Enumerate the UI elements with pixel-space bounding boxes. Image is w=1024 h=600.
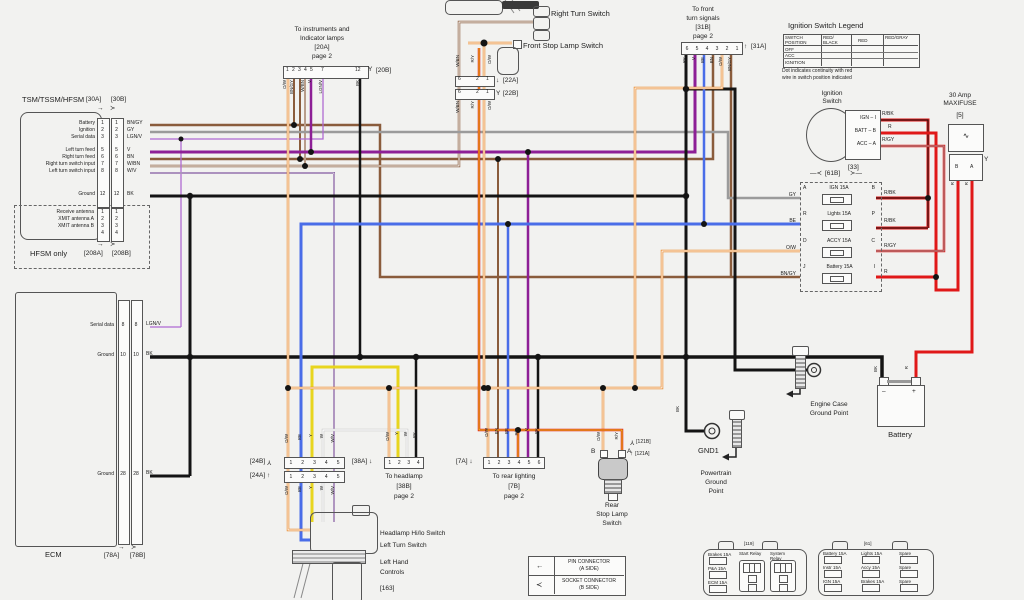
conn22-pin: 1 (486, 77, 489, 83)
relay-icon (770, 560, 796, 592)
conn31-pin: 5 (696, 46, 699, 52)
rear-stop-pin-a (618, 450, 626, 458)
conn24-pin: 3 (313, 460, 316, 466)
tsm-pin: 8 (111, 169, 122, 175)
ignition-switch-title: Switch (805, 98, 859, 105)
legend-col-line (821, 34, 822, 66)
front-stop-switch-body (497, 47, 519, 75)
conn22b-strip (455, 89, 495, 100)
conn20-pin: 3 (298, 68, 301, 74)
conn31-title: To front (668, 6, 738, 13)
conn7-pin: 5 (528, 460, 531, 466)
conn7-title: [7B] (474, 483, 554, 490)
wire-label: O/W (285, 434, 290, 443)
key-divider (528, 575, 624, 576)
rear-stop-label: Switch (589, 520, 635, 527)
fork-icon: Y (984, 156, 988, 163)
wire-label: BK (683, 57, 688, 63)
fuse-right-pin: P (872, 212, 875, 218)
switch-housing-outline (445, 0, 503, 15)
fuseblock-header-pre: —≺ (810, 170, 822, 177)
controls-housing (310, 512, 378, 554)
tsm-conn-30b: [30B] (111, 96, 126, 103)
conn7-pin: 1 (488, 460, 491, 466)
fuse-right-pin: C (871, 239, 875, 245)
wire-label: R/BK (884, 191, 896, 197)
conn38-title: page 2 (369, 493, 439, 500)
wire-label: BE (298, 486, 303, 492)
pin-arrow-icon: → (97, 105, 104, 112)
conn24b-strip: 1 2 3 4 5 (284, 457, 345, 469)
fork-icon: Y (630, 438, 634, 445)
conn7-pin: 6 (538, 460, 541, 466)
ground-stud-icon (795, 355, 806, 389)
legend-note: Dot indicates continuity with red (782, 69, 852, 75)
wire-label: GY (127, 128, 134, 134)
legend-row-label: ACC (785, 53, 795, 58)
tsm-row-label: Serial data (8, 135, 95, 141)
conn24-pin: 5 (337, 474, 340, 480)
tsm-pin: 12 (97, 192, 108, 198)
hfsm-pin: 4 (97, 231, 108, 237)
legend-row-line (783, 52, 918, 53)
conn24a-label: [24A] (250, 472, 265, 479)
fork-icon: Y (496, 90, 500, 97)
fuse-icon (862, 584, 880, 592)
conn31a-label: [31A] (751, 43, 766, 50)
right-turn-switch-base (533, 30, 550, 41)
fuse-amp: 15A (842, 211, 851, 217)
conn31-title: page 2 (668, 33, 738, 40)
ecm-pin: 10 (131, 353, 141, 359)
ignition-pin: BATT – B (846, 129, 876, 135)
tsm-pin: 1 (111, 121, 122, 127)
wires-brown (150, 53, 800, 458)
ecm-row-label: Ground (40, 353, 114, 359)
up-arrow-icon: ↑ (267, 472, 270, 479)
rear-stop-switch-thread (604, 479, 622, 494)
socket-connector-icon: ≺ (536, 580, 542, 589)
box119-relay-label: Start Relay (739, 551, 763, 556)
pin-arrow-icon: → (118, 544, 125, 551)
fuse-icon (900, 584, 918, 592)
tsm-pin: 5 (97, 148, 108, 154)
wire-label: BE (298, 434, 303, 440)
wire-label: BK (676, 406, 681, 412)
wire-label: Y (309, 434, 314, 437)
wire-label: R (884, 270, 888, 276)
rear-stop-switch-body (598, 458, 628, 480)
legend-col-line (851, 34, 852, 66)
hfsm-conn-208a: [208A] (84, 250, 103, 257)
conn121b-label: [121B] (636, 439, 650, 445)
fuse-icon (822, 273, 852, 284)
wire-label: BK (874, 366, 879, 372)
conn7-title: page 2 (474, 493, 554, 500)
fuse-icon (822, 247, 852, 258)
ignition-switch-title: Ignition (805, 90, 859, 97)
battery-neg-sign: – (882, 388, 886, 395)
conn20-title: page 2 (272, 53, 372, 60)
wire-label: R/GY (882, 138, 894, 144)
legend-note: wire in switch position indicated (782, 76, 852, 82)
ecm-box (15, 292, 117, 547)
key-pin-label: PIN CONNECTOR (556, 560, 622, 566)
wire-label: O/W (772, 246, 796, 252)
conn20-pin: 5 (310, 68, 313, 74)
wire-label: O/W (283, 80, 288, 89)
ecm-row-label: Ground (40, 472, 114, 478)
fuse-icon (824, 570, 842, 578)
fuse-name: Lights (827, 211, 840, 217)
box61-label: [61] (864, 541, 872, 546)
wire-label: Y (395, 432, 400, 435)
tsm-row-label: Ignition (8, 128, 95, 134)
ecm-conn-78b: [78B] (130, 552, 145, 559)
conn7-pin: 4 (518, 460, 521, 466)
wire-label: LGN/V (127, 135, 142, 141)
fuse-amp: 15A (842, 238, 851, 244)
fuse-name: Battery (826, 264, 842, 270)
wire-label: BE (772, 219, 796, 225)
wire-label: BK (146, 471, 153, 477)
ignition-pin: ACC – A (846, 142, 876, 148)
wire-label: BK (535, 428, 540, 434)
wires-ry (479, 48, 622, 458)
maxifuse-title: MAXIFUSE (930, 100, 990, 107)
wire-label: O/W (485, 428, 490, 437)
conn121a-label: [121A] (635, 451, 649, 457)
right-turn-switch-body (533, 17, 550, 30)
wire-label: R (965, 182, 970, 185)
maxifuse-body: ∿ (948, 124, 984, 152)
conn38-pin: 3 (407, 460, 410, 466)
powertrain-ground-label: Powertrain (692, 470, 740, 477)
wires-violet (150, 53, 695, 458)
powertrain-ground-label: Ground (692, 479, 740, 486)
fuse-amp: 15A (844, 264, 853, 270)
fuse-left-pin: J (803, 265, 806, 271)
fuse-right-pin: I (874, 265, 875, 271)
fork-icon: Y (368, 66, 372, 73)
tsm-pin: 2 (111, 128, 122, 134)
wire-label: O/W (488, 101, 493, 110)
conn20-pin: 12 (355, 68, 361, 74)
pin-arrow-icon: → (97, 241, 104, 248)
relay-icon (739, 560, 765, 592)
tsm-pin: 8 (97, 169, 108, 175)
ecm-pin: 28 (118, 472, 128, 478)
tsm-row-label: Right turn feed (8, 155, 95, 161)
left-turn-switch-label: Left Turn Switch (380, 542, 427, 549)
battery-pos-sign: + (912, 388, 916, 395)
conn38-pin: 2 (398, 460, 401, 466)
conn24b-label: [24B] (250, 458, 265, 465)
conn38-title: [38B] (369, 483, 439, 490)
wire-label: W (404, 432, 409, 436)
rear-stop-pin: B (591, 448, 595, 455)
hfsm-row-label: Receive antenna (28, 210, 94, 216)
conn38-strip: 1 2 3 4 (384, 457, 424, 469)
wire-label: O/W (488, 55, 493, 64)
fuse-icon (822, 220, 852, 231)
fuse-icon (824, 584, 842, 592)
wire-label: W/BN (456, 101, 461, 113)
wire-label: GY (772, 193, 796, 199)
tsm-title: TSM/TSSM/HFSM (22, 95, 84, 104)
fuse-icon (709, 557, 727, 565)
legend-col-header: SWITCH POSITION (785, 35, 819, 45)
socket-arrow-icon: ≻ (110, 105, 115, 112)
legend-col-line (883, 34, 884, 66)
tsm-pin: 1 (97, 121, 108, 127)
fuseblock-header-post: ≻— (850, 170, 862, 177)
wire-label: W/BN (127, 162, 140, 168)
ecm-pin: 28 (131, 472, 141, 478)
rear-stop-label: Rear (589, 502, 635, 509)
wire-label: BK (413, 432, 418, 438)
conn24-pin: 2 (301, 474, 304, 480)
wire-label: BK (146, 352, 153, 358)
headlamp-switch-label: Headlamp Hi/lo Switch (380, 530, 445, 537)
conn38-pin: 1 (388, 460, 391, 466)
down-arrow-icon: ↓ (469, 458, 472, 465)
rear-stop-pin-b (600, 450, 608, 458)
controls-conn-label: [163] (380, 585, 394, 592)
conn22a-strip (455, 76, 495, 87)
fuse-icon (709, 571, 727, 579)
fuse-row-text: A IGN 15A B (803, 186, 875, 192)
fuse-row-text: D ACCY 15A C (803, 239, 875, 245)
wiring-diagram-page: TSM/TSSM/HFSM [30A] [30B] → ≻ Battery Ig… (0, 0, 1024, 600)
ecm-row-label: Serial data (40, 323, 114, 329)
conn7-title: To rear lighting (474, 473, 554, 480)
wire-label: V (127, 148, 130, 154)
maxifuse-pin: B (955, 165, 958, 171)
fuse-name: IGN (829, 185, 838, 191)
fuse-name: ACCY (827, 238, 841, 244)
gnd1-label: GND1 (698, 446, 719, 455)
conn7-strip: 1 2 3 4 5 6 (483, 457, 545, 469)
tsm-pin: 7 (111, 162, 122, 168)
fuse-icon (709, 585, 727, 593)
conn24-pin: 1 (290, 474, 293, 480)
conn20-pin: 4 (304, 68, 307, 74)
conn20-pin: 7 (321, 68, 324, 74)
conn20-pin: 1 (286, 68, 289, 74)
fuse-right-pin: B (872, 186, 875, 192)
tsm-pin: 3 (97, 135, 108, 141)
wire-label: BN/GY (290, 80, 295, 94)
rear-stop-switch-tip (608, 493, 618, 501)
down-arrow-icon: ↓ (369, 458, 372, 465)
conn7-label: [7A] (456, 458, 468, 465)
fuse-left-pin: D (803, 239, 807, 245)
conn24-pin: 4 (325, 474, 328, 480)
ecm-pin: 10 (118, 353, 128, 359)
legend-col-header: RED (858, 38, 882, 43)
conn38-pin: 4 (417, 460, 420, 466)
down-arrow-icon: ↓ (496, 77, 499, 84)
wire-label: V (308, 80, 313, 83)
wire-bn-bus (150, 53, 713, 159)
tsm-row-label: Left turn switch input (8, 169, 95, 175)
conn20-label-b: [20B] (376, 67, 391, 74)
tsm-row-label: Right turn switch input (8, 162, 95, 168)
wire-label: R/BK (882, 112, 894, 118)
ignition-pin: IGN – I (846, 116, 876, 122)
conn31-pin: 6 (686, 46, 689, 52)
fuse-icon (822, 194, 852, 205)
wire-label: W/BN (301, 80, 306, 92)
fuse-left-pin: R (803, 212, 807, 218)
wire-label: R (951, 182, 956, 185)
conn31-title: turn signals (668, 15, 738, 22)
tsm-row-label: Left turn feed (8, 148, 95, 154)
up-arrow-icon: ↑ (744, 43, 747, 50)
conn38-title: To headlamp (369, 473, 439, 480)
wire-label: R/Y (515, 428, 520, 436)
conn31-pin: 1 (736, 46, 739, 52)
ecm-pin: 8 (118, 323, 128, 329)
battery-top-bar (887, 380, 911, 383)
fuse-icon (862, 570, 880, 578)
fuseblock-header: [61B] (825, 170, 840, 177)
wires-lgnv (150, 77, 323, 327)
hfsm-pin: 2 (97, 217, 108, 223)
legend-row-label: IGNITION (785, 60, 805, 65)
ecm-pin-column-a (118, 300, 130, 545)
hfsm-row-label: XMIT antenna B (28, 224, 94, 230)
conn31-pin: 4 (706, 46, 709, 52)
hfsm-only-label: HFSM only (30, 249, 67, 258)
conn20-pin: 2 (292, 68, 295, 74)
conn22-pin: 2 (476, 90, 479, 96)
wire-label: V (692, 57, 697, 60)
fuse-amp: 15A (840, 185, 849, 191)
key-pin-label: (A SIDE) (556, 567, 622, 573)
wire-label: LGN/V (319, 80, 324, 94)
hfsm-pin: 1 (111, 210, 122, 216)
wire-label: BN/GY (768, 272, 796, 278)
engine-ground-label: Ground Point (796, 410, 862, 417)
wire-label: BK (356, 80, 361, 86)
conn20-title: [20A] (272, 44, 372, 51)
wire-label: W (320, 486, 325, 490)
pin-connector-arrow-icon: ← (536, 561, 544, 570)
ecm-title: ECM (45, 550, 62, 559)
legend-col-header: RED/ BLACK (823, 35, 849, 45)
conn24-pin: 4 (325, 460, 328, 466)
wire-label: BN (495, 428, 500, 434)
wire-label: R (905, 366, 910, 369)
right-turn-switch-cap (533, 6, 550, 17)
wire-label: BN/GY (127, 121, 143, 127)
conn7-pin: 3 (508, 460, 511, 466)
wire-label: Y (309, 486, 314, 489)
hfsm-pin: 3 (97, 224, 108, 230)
conn22-pin: 2 (476, 77, 479, 83)
conn31-pin: 3 (716, 46, 719, 52)
tsm-pin: 2 (97, 128, 108, 134)
rear-stop-pin: A (627, 448, 631, 455)
wire-label: R/BK (884, 219, 896, 225)
socket-arrow-icon: ≻ (110, 241, 115, 248)
controls-stem (332, 562, 362, 600)
conn22-pin: 6 (458, 77, 461, 83)
tsm-pin: 12 (111, 192, 122, 198)
wire-label: BN/GY (728, 57, 733, 71)
wire-label: BN (127, 155, 134, 161)
fuse-left-pin: A (803, 186, 806, 192)
conn31-title: [31B] (668, 24, 738, 31)
tsm-row-label: Ground (8, 192, 95, 198)
conn24-pin: 3 (313, 474, 316, 480)
fuse-icon (900, 570, 918, 578)
wire-label: W/V (331, 434, 336, 443)
ecm-pin: 8 (131, 323, 141, 329)
wire-label: LGN/V (146, 322, 161, 328)
conn20-title: Indicator lamps (272, 35, 372, 42)
conn22b-label: [22B] (503, 90, 518, 97)
wire-label: R (888, 125, 892, 131)
conn31-pin: 2 (726, 46, 729, 52)
fuse-icon (900, 556, 918, 564)
controls-name: Left Hand (380, 559, 408, 566)
conn38-label: [38A] (352, 458, 367, 465)
wire-label: BK (127, 192, 134, 198)
wire-label: W/V (331, 486, 336, 495)
wire-label: O/W (285, 486, 290, 495)
wire-label: R/Y (471, 55, 476, 63)
wire-label: O/W (386, 432, 391, 441)
hfsm-conn-208b: [208B] (112, 250, 131, 257)
tsm-pin: 5 (111, 148, 122, 154)
fuse-element-icon: ∿ (963, 131, 969, 140)
fork-icon: Y (267, 458, 271, 465)
maxifuse-pin: A (970, 165, 973, 171)
tsm-pin: 3 (111, 135, 122, 141)
key-socket-label: SOCKET CONNECTOR (556, 579, 622, 585)
socket-arrow-icon: ≻ (131, 544, 136, 551)
wires-black (150, 53, 882, 476)
wire-label: BN (710, 57, 715, 63)
engine-ground-label: Engine Case (796, 401, 862, 408)
fuse-icon (824, 556, 842, 564)
tsm-pin: 6 (97, 155, 108, 161)
wire-label: W (320, 434, 325, 438)
wire-label: O/W (719, 57, 724, 66)
fuse-icon (862, 556, 880, 564)
wire-label: R/GY (884, 244, 896, 250)
tsm-row-label: Battery (8, 121, 95, 127)
wire-bngy-main (150, 125, 800, 277)
legend-col-header: RED/GRAY (885, 35, 917, 40)
conn22-pin: 6 (458, 90, 461, 96)
hfsm-pin: 1 (97, 210, 108, 216)
legend-title: Ignition Switch Legend (788, 21, 863, 30)
conn31-strip: 6 5 4 3 2 1 (681, 42, 743, 55)
key-socket-label: (B SIDE) (556, 586, 622, 592)
maxifuse-title: 30 Amp (930, 92, 990, 99)
battery-label: Battery (877, 430, 923, 439)
wire-label: W/BN (456, 55, 461, 67)
wire-label: BE (701, 57, 706, 63)
hfsm-row-label: XMIT antenna A (28, 217, 94, 223)
legend-row-label: OFF (785, 47, 794, 52)
fuse-row-text: R Lights 15A P (803, 212, 875, 218)
conn7-pin: 2 (498, 460, 501, 466)
